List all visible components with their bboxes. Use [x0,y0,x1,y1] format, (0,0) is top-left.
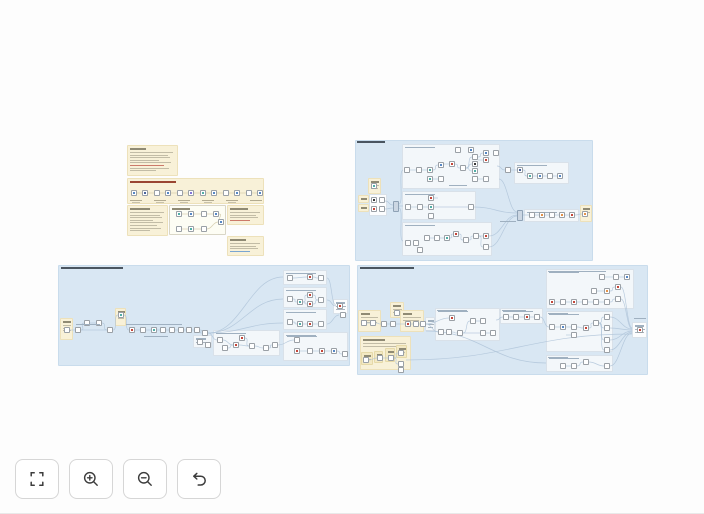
workflow-node[interactable] [513,314,519,320]
workflow-node[interactable] [307,301,313,307]
note-text-line [130,228,161,229]
node-glyph [190,192,192,194]
workflow-node[interactable] [107,327,113,333]
workflow-node[interactable] [529,212,535,218]
workflow-node[interactable] [472,161,478,167]
node-caption-text [154,200,166,201]
workflow-node[interactable] [472,154,478,160]
workflow-node[interactable] [201,211,207,217]
node-glyph [215,213,217,215]
note-heading [130,148,146,150]
note-heading [361,313,370,315]
workflow-node[interactable] [549,299,555,305]
workflow-node[interactable] [287,296,293,302]
workflow-node[interactable] [405,321,411,327]
workflow-node[interactable] [287,275,293,281]
workflow-node[interactable] [483,150,489,156]
workflow-canvas[interactable] [0,0,704,513]
workflow-node[interactable] [377,355,383,361]
workflow-node[interactable] [420,321,426,327]
workflow-node[interactable] [205,342,211,348]
workflow-node[interactable] [472,176,478,182]
zoom-out-button[interactable] [123,459,167,499]
note-heading [230,239,246,241]
workflow-node[interactable] [160,327,166,333]
workflow-node[interactable] [483,244,489,250]
workflow-node[interactable] [615,296,621,302]
workflow-node[interactable] [307,321,313,327]
cluster-title-text [61,267,123,269]
workflow-node[interactable] [200,190,206,196]
workflow-node[interactable] [318,275,324,281]
node-caption-text [437,310,467,311]
note-text-line [403,317,421,318]
undo-icon [190,470,208,488]
workflow-node[interactable] [599,274,605,280]
workflow-edges [0,0,704,514]
workflow-node[interactable] [394,310,400,316]
workflow-node[interactable] [571,299,577,305]
cluster-title-text [360,267,414,269]
panel-heading [438,311,468,312]
node-glyph [241,337,243,339]
note-text-line [230,215,256,216]
note-heading [361,198,367,200]
node-caption-text [156,202,164,203]
workflow-node[interactable] [604,363,610,369]
note-text-line [361,317,378,318]
node-glyph [133,192,135,194]
workflow-node[interactable] [604,325,610,331]
note-text-line [230,243,260,244]
workflow-node[interactable] [75,327,81,333]
workflow-node[interactable] [446,329,452,335]
node-caption-text [502,310,526,311]
note-text-line [130,170,156,171]
node-glyph [190,213,192,215]
node-caption-text [548,313,568,314]
workflow-node[interactable] [342,351,348,357]
annotation-note [227,236,264,256]
zoom-in-icon [82,470,100,488]
node-glyph [539,175,541,177]
workflow-metanode[interactable] [393,201,399,212]
node-caption-text [204,202,212,203]
node-glyph [585,327,587,329]
node-glyph [309,294,311,296]
workflow-node[interactable] [468,147,474,153]
workflow-node[interactable] [560,324,566,330]
cluster-title-text [357,141,385,143]
workflow-node[interactable] [503,314,509,320]
workflow-node[interactable] [398,367,404,373]
workflow-node[interactable] [571,324,577,330]
node-glyph [451,163,453,165]
panel-heading [549,272,579,273]
panel-heading [549,314,579,315]
workflow-node[interactable] [319,348,325,354]
workflow-node[interactable] [371,183,377,189]
workflow-node[interactable] [413,321,419,327]
workflow-node[interactable] [604,314,610,320]
note-text-line [230,217,258,218]
node-glyph [474,170,476,172]
workflow-node[interactable] [591,288,597,294]
workflow-node[interactable] [246,190,252,196]
workflow-node[interactable] [493,150,499,156]
node-glyph [606,290,608,292]
node-glyph [321,350,323,352]
node-glyph [519,169,521,171]
workflow-node[interactable] [547,173,553,179]
workflow-node[interactable] [151,327,157,333]
node-glyph [235,344,237,346]
workflow-node[interactable] [428,204,434,210]
zoom-out-icon [136,470,154,488]
workflow-node[interactable] [404,167,410,173]
note-heading [583,208,590,210]
workflow-node[interactable] [473,233,479,239]
node-glyph [584,213,586,215]
workflow-metanode-panel [213,330,280,356]
workflow-node[interactable] [294,337,300,343]
reset-view-button[interactable] [177,459,221,499]
workflow-metanode-panel [546,311,613,352]
workflow-node[interactable] [593,320,599,326]
node-glyph [573,301,575,303]
workflow-node[interactable] [188,190,194,196]
workflow-node[interactable] [257,190,263,196]
node-glyph [373,185,375,187]
node-caption-text [226,200,238,201]
workflow-node[interactable] [129,327,135,333]
workflow-node[interactable] [527,173,533,179]
workflow-node[interactable] [483,176,489,182]
note-text-line [130,165,164,166]
workflow-edges [0,0,704,514]
node-glyph [526,316,528,318]
node-caption-text [202,200,214,201]
workflow-node[interactable] [604,299,610,305]
node-caption-text [287,336,317,337]
workflow-node[interactable] [413,240,419,246]
workflow-node[interactable] [582,299,588,305]
workflow-node[interactable] [176,226,182,232]
workflow-node[interactable] [294,348,300,354]
note-text-line [130,217,162,218]
workflow-node[interactable] [211,190,217,196]
node-glyph [213,192,215,194]
workflow-node[interactable] [449,315,455,321]
note-heading [130,181,176,183]
note-text-line [130,152,173,153]
node-glyph [190,228,192,230]
panel-heading [405,147,435,148]
node-glyph [626,276,628,278]
node-glyph [470,149,472,151]
node-caption-text [576,271,606,272]
workflow-node[interactable] [370,320,376,326]
note-text-line [130,155,168,156]
node-glyph [131,329,133,331]
note-text-line [230,251,250,252]
zoom-in-button[interactable] [69,459,113,499]
workflow-node[interactable] [604,288,610,294]
workflow-node[interactable] [188,226,194,232]
note-text-line [428,327,433,328]
workflow-metanode-panel [402,191,476,220]
workflow-node[interactable] [307,348,313,354]
node-glyph [440,164,442,166]
workflow-node[interactable] [297,299,303,305]
workflow-node[interactable] [455,147,461,153]
workflow-node[interactable] [331,348,337,354]
workflow-node[interactable] [549,324,555,330]
note-text-line [363,346,401,347]
workflow-viewer [0,0,704,514]
workflow-node[interactable] [176,211,182,217]
workflow-node[interactable] [539,212,545,218]
workflow-node[interactable] [154,190,160,196]
workflow-node[interactable] [263,345,269,351]
workflow-metanode[interactable] [517,210,523,221]
workflow-node[interactable] [637,327,643,333]
workflow-node[interactable] [194,327,200,333]
workflow-node[interactable] [583,359,589,365]
workflow-node[interactable] [371,197,377,203]
workflow-node[interactable] [560,299,566,305]
workflow-node[interactable] [217,337,223,343]
workflow-node[interactable] [424,235,430,241]
note-text-line [230,212,260,213]
workflow-node[interactable] [428,195,434,201]
workflow-node[interactable] [438,329,444,335]
note-heading [63,321,71,323]
workflow-node[interactable] [505,167,511,173]
workflow-node[interactable] [613,274,619,280]
node-glyph [571,214,573,216]
note-text-line [130,225,157,226]
workflow-node[interactable] [272,342,278,348]
workflow-node[interactable] [361,320,367,326]
node-glyph [485,152,487,154]
workflow-node[interactable] [571,363,577,369]
node-caption-text [126,324,182,325]
workflow-node[interactable] [427,176,433,182]
workflow-node[interactable] [460,165,466,171]
node-glyph [339,305,341,307]
workflow-node[interactable] [379,206,385,212]
workflow-node[interactable] [118,312,124,318]
workflow-node[interactable] [463,237,469,243]
note-heading [403,313,412,315]
node-glyph [296,350,298,352]
workflow-node[interactable] [457,330,463,336]
node-glyph [178,213,180,215]
workflow-node[interactable] [178,327,184,333]
workflow-node[interactable] [559,212,565,218]
annotation-note [127,145,178,176]
note-text-line [130,220,153,221]
workflow-node[interactable] [470,318,476,324]
workflow-node[interactable] [363,357,369,363]
workflow-node[interactable] [534,314,540,320]
note-heading [172,208,190,210]
panel-heading [286,312,316,313]
workflow-node[interactable] [444,235,450,241]
workflow-node[interactable] [140,327,146,333]
workflow-node[interactable] [571,332,577,338]
node-glyph [144,192,146,194]
workflow-node[interactable] [64,327,70,333]
workflow-node[interactable] [186,327,192,333]
workflow-node[interactable] [197,339,203,345]
workflow-node[interactable] [517,167,523,173]
workflow-node[interactable] [453,231,459,237]
node-caption-text [130,200,142,201]
workflow-node[interactable] [388,355,394,361]
note-heading [393,305,401,307]
workflow-node[interactable] [318,321,324,327]
workflow-node[interactable] [405,240,411,246]
workflow-node[interactable] [480,330,486,336]
workflow-node[interactable] [449,161,455,167]
node-caption-text [144,336,168,337]
workflow-node[interactable] [213,211,219,217]
panel-heading [405,225,435,226]
workflow-node[interactable] [202,330,208,336]
workflow-node[interactable] [169,327,175,333]
workflow-node[interactable] [624,274,630,280]
workflow-node[interactable] [438,176,444,182]
workflow-node[interactable] [604,337,610,343]
note-heading [130,208,150,210]
node-glyph [373,208,375,210]
workflow-node[interactable] [188,211,194,217]
workflow-node[interactable] [483,157,489,163]
workflow-node[interactable] [398,350,404,356]
workflow-node[interactable] [582,211,588,217]
node-glyph [236,192,238,194]
workflow-node[interactable] [84,320,90,326]
workflow-node[interactable] [233,342,239,348]
node-glyph [617,286,619,288]
workflow-node[interactable] [604,347,610,353]
workflow-node[interactable] [472,168,478,174]
node-glyph [299,323,301,325]
node-glyph [407,323,409,325]
workflow-node[interactable] [405,204,411,210]
workflow-node[interactable] [428,213,434,219]
workflow-node[interactable] [569,212,575,218]
workflow-node[interactable] [131,190,137,196]
workflow-node[interactable] [434,235,440,241]
note-text-line [428,324,434,325]
workflow-node[interactable] [165,190,171,196]
node-glyph [153,329,155,331]
workflow-node[interactable] [218,219,224,225]
workflow-node[interactable] [223,190,229,196]
workflow-node[interactable] [307,292,313,298]
fit-to-screen-button[interactable] [15,459,59,499]
workflow-node[interactable] [483,233,489,239]
workflow-node[interactable] [239,335,245,341]
workflow-node[interactable] [537,173,543,179]
workflow-node[interactable] [371,206,377,212]
node-glyph [485,159,487,161]
node-glyph [167,192,169,194]
node-glyph [333,350,335,352]
workflow-node[interactable] [142,190,148,196]
node-caption-text [228,202,236,203]
workflow-node[interactable] [557,173,563,179]
workflow-node[interactable] [390,321,396,327]
workflow-node[interactable] [468,204,474,210]
node-glyph [220,221,222,223]
note-heading [230,208,248,210]
node-glyph [430,206,432,208]
node-glyph [562,326,564,328]
workflow-node[interactable] [427,167,433,173]
workflow-node[interactable] [337,303,343,309]
workflow-node[interactable] [201,226,207,232]
workflow-node[interactable] [340,312,346,318]
workflow-node[interactable] [379,197,385,203]
note-text-line [230,220,250,221]
node-glyph [429,178,431,180]
workflow-node[interactable] [480,318,486,324]
note-text-line [130,215,160,216]
workflow-node[interactable] [287,319,293,325]
workflow-node[interactable] [560,363,566,369]
node-caption-text [634,318,646,319]
node-caption-text [180,202,188,203]
workflow-node[interactable] [417,204,423,210]
workflow-node[interactable] [297,321,303,327]
workflow-node[interactable] [593,299,599,305]
workflow-node[interactable] [307,274,313,280]
workflow-node[interactable] [318,297,324,303]
workflow-node[interactable] [549,212,555,218]
panel-heading [503,311,533,312]
workflow-node[interactable] [234,190,240,196]
workflow-node[interactable] [416,167,422,173]
node-glyph [551,301,553,303]
panel-heading [216,333,246,334]
workflow-node[interactable] [417,247,423,253]
note-text-line [130,157,170,158]
workflow-metanode-panel [425,317,435,331]
workflow-node[interactable] [524,314,530,320]
workflow-edges [0,0,704,514]
node-glyph [299,301,301,303]
workflow-node[interactable] [177,190,183,196]
workflow-node[interactable] [249,343,255,349]
workflow-node[interactable] [583,325,589,331]
node-glyph [202,192,204,194]
workflow-node[interactable] [381,321,387,327]
node-glyph [120,314,122,316]
node-glyph [451,317,453,319]
node-glyph [430,197,432,199]
workflow-node[interactable] [438,162,444,168]
workflow-node[interactable] [490,330,496,336]
workflow-node[interactable] [615,284,621,290]
workflow-node[interactable] [96,320,102,326]
node-glyph [561,214,563,216]
workflow-node[interactable] [222,345,228,351]
workflow-metanode-panel [435,308,500,341]
